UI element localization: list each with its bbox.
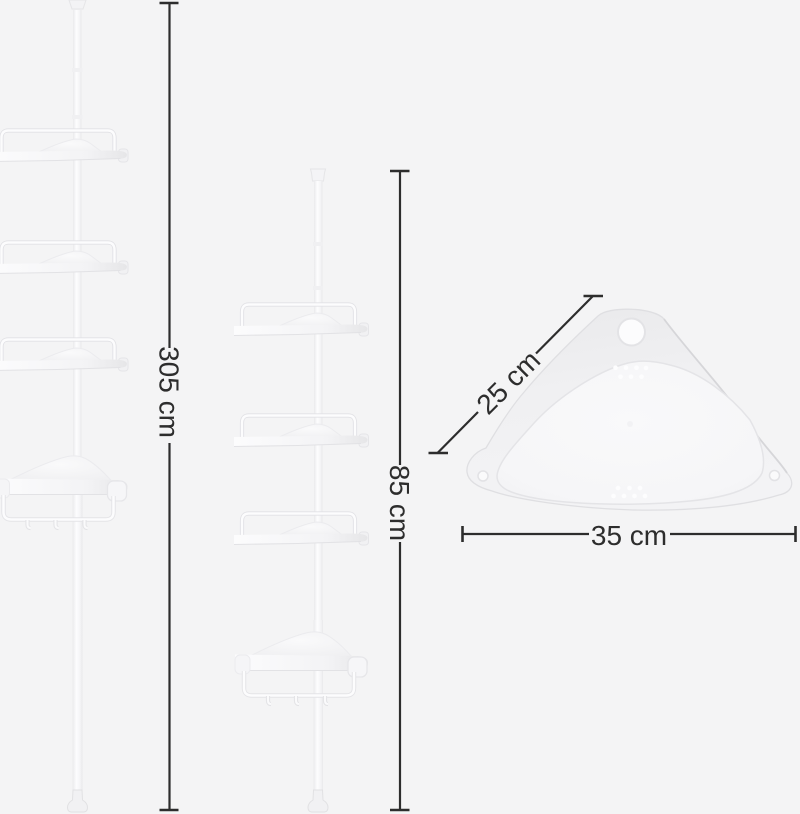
svg-text:35 cm: 35 cm [591, 520, 667, 551]
svg-text:85 cm: 85 cm [384, 465, 415, 541]
svg-text:305 cm: 305 cm [154, 346, 185, 438]
